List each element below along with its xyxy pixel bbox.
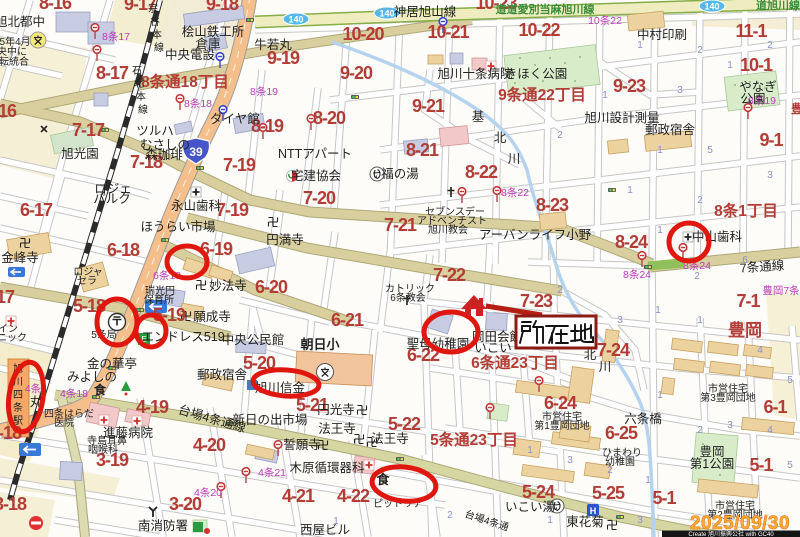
svg-text:旭北都中: 旭北都中 [0,14,45,29]
svg-text:円満寺: 円満寺 [266,233,304,247]
svg-text:誓願寺: 誓願寺 [283,438,321,452]
svg-text:1: 1 [527,445,533,456]
svg-text:10-22: 10-22 [518,20,560,40]
svg-text:線: 線 [138,103,148,116]
svg-text:六条橋: 六条橋 [624,412,662,426]
svg-text:永山歯科: 永山歯科 [171,199,222,213]
svg-text:南消防署: 南消防署 [138,518,188,533]
svg-text:6: 6 [742,255,748,266]
svg-text:第3豊岡団地: 第3豊岡団地 [700,391,756,404]
svg-text:5-17: 5-17 [0,287,15,307]
svg-text:基: 基 [472,110,485,124]
svg-text:1: 1 [697,315,703,326]
svg-text:8条通18丁目: 8条通18丁目 [141,72,229,91]
svg-text:3: 3 [567,455,573,466]
svg-text:道旭川線: 道旭川線 [756,0,800,12]
svg-text:妙法寺: 妙法寺 [209,279,247,293]
svg-text:宗: 宗 [148,2,158,15]
svg-text:140: 140 [704,2,719,12]
svg-text:4条: 4条 [25,382,42,395]
svg-text:エンドレス519: エンドレス519 [141,330,224,344]
svg-text:9-20: 9-20 [340,63,373,83]
svg-text:4: 4 [757,345,763,356]
svg-text:5: 5 [787,460,793,471]
svg-text:本: 本 [152,28,162,41]
svg-text:願成寺: 願成寺 [193,310,231,324]
svg-text:NTTアパート: NTTアパート [278,147,352,161]
svg-text:1: 1 [333,516,339,527]
svg-text:3-18: 3-18 [0,494,27,514]
svg-text:6-24: 6-24 [544,393,577,413]
svg-text:牛若丸: 牛若丸 [254,37,292,52]
svg-text:4-21: 4-21 [282,486,315,506]
svg-text:保育所: 保育所 [144,293,174,306]
svg-text:食: 食 [93,382,107,397]
svg-text:倉庫: 倉庫 [195,36,220,51]
svg-text:パルク: パルク [93,192,131,206]
svg-text:豊岡7条: 豊岡7条 [762,284,800,297]
svg-text:4条21: 4条21 [258,466,286,479]
svg-text:ニック: ニック [0,332,27,344]
svg-text:1: 1 [602,90,608,101]
svg-text:石: 石 [132,66,142,77]
svg-text:6-18: 6-18 [107,240,140,260]
svg-text:5-1: 5-1 [652,488,676,508]
svg-text:中村印刷: 中村印刷 [637,27,687,42]
svg-text:6-1: 6-1 [763,397,787,417]
svg-text:4条18: 4条18 [60,387,88,400]
svg-text:豊岡: 豊岡 [728,320,762,340]
svg-text:2: 2 [697,425,703,436]
svg-text:8条24: 8条24 [623,268,651,281]
svg-text:1: 1 [657,145,663,156]
svg-text:北: 北 [134,78,144,90]
svg-text:8条22: 8条22 [501,186,529,199]
svg-text:3: 3 [637,515,643,526]
svg-text:8条19: 8条19 [250,85,278,98]
svg-text:円光寺: 円光寺 [317,403,355,417]
svg-text:9-23: 9-23 [613,76,646,96]
svg-text:中山歯科: 中山歯科 [692,229,743,244]
svg-text:8条17: 8条17 [102,30,130,43]
svg-text:法王寺: 法王寺 [318,422,356,436]
svg-text:8-21: 8-21 [406,140,439,160]
svg-text:ツルハ: ツルハ [136,124,174,138]
svg-text:2: 2 [447,510,453,521]
svg-text:金峰寺: 金峰寺 [1,250,39,265]
svg-text:本: 本 [136,90,146,103]
svg-text:1: 1 [637,40,643,51]
svg-text:3: 3 [727,420,733,431]
svg-text:1: 1 [547,515,553,526]
svg-text:木原循環器科: 木原循環器科 [289,461,365,475]
svg-text:1: 1 [727,60,733,71]
svg-text:2: 2 [557,130,563,141]
svg-text:7-20: 7-20 [303,188,336,208]
svg-text:第1公園: 第1公園 [690,457,734,471]
svg-text:8条1丁目: 8条1丁目 [714,201,778,220]
svg-text:法王寺: 法王寺 [371,432,409,446]
svg-text:6-25: 6-25 [605,423,638,443]
svg-text:1: 1 [627,185,633,196]
svg-text:6-17: 6-17 [20,200,53,220]
svg-text:8-23: 8-23 [536,195,569,215]
svg-text:7-16: 7-16 [0,101,17,121]
svg-text:川: 川 [508,152,521,166]
svg-text:3: 3 [617,315,623,326]
svg-text:9条通22丁目: 9条通22丁目 [498,85,586,104]
svg-text:4-22: 4-22 [337,486,370,506]
svg-text:9-21: 9-21 [412,96,445,116]
svg-text:5: 5 [787,375,793,386]
svg-text:6-20: 6-20 [255,277,288,297]
svg-text:5: 5 [707,145,713,156]
svg-text:1: 1 [655,305,661,316]
svg-text:8-24: 8-24 [615,232,648,252]
svg-text:川: 川 [599,360,612,374]
svg-text:咽喉科: 咽喉科 [88,443,118,456]
svg-text:5-22: 5-22 [388,414,421,434]
svg-text:条: 条 [13,401,23,414]
svg-text:1: 1 [657,390,663,401]
svg-text:7-1: 7-1 [736,291,760,311]
svg-text:9-1: 9-1 [759,130,783,150]
svg-text:線: 線 [154,41,164,54]
svg-text:9-18: 9-18 [206,0,239,14]
svg-text:4-20: 4-20 [193,435,226,455]
svg-text:いこい: いこい [474,341,512,355]
svg-text:宅建協会: 宅建協会 [291,168,342,183]
svg-text:郵政宿舎: 郵政宿舎 [197,367,248,382]
svg-text:5条通23丁目: 5条通23丁目 [430,430,518,449]
svg-text:1: 1 [657,225,663,236]
svg-text:2: 2 [557,285,563,296]
svg-text:旭光園: 旭光園 [61,147,99,161]
svg-text:10-1: 10-1 [740,55,773,75]
svg-text:8-16: 8-16 [39,0,72,13]
svg-text:郵政宿舎: 郵政宿舎 [645,122,696,137]
svg-text:8-20: 8-20 [313,108,346,128]
svg-text:4-19: 4-19 [136,397,169,417]
svg-text:旭川教会: 旭川教会 [428,223,468,236]
svg-text:旭川十条病院: 旭川十条病院 [437,66,513,81]
svg-text:Create 旭川振興公社 with GC40: Create 旭川振興公社 with GC40 [688,530,774,537]
svg-text:4条20: 4条20 [194,486,222,499]
svg-text:西屋ビル: 西屋ビル [300,523,350,537]
svg-text:福の湯: 福の湯 [381,166,419,181]
svg-text:8-22: 8-22 [465,162,498,182]
svg-text:2: 2 [697,195,703,206]
svg-text:11-1: 11-1 [735,21,767,41]
svg-text:ほうらい市場: ほうらい市場 [140,219,215,234]
svg-text:10-21: 10-21 [427,22,469,42]
svg-text:7-21: 7-21 [384,215,417,235]
svg-text:8条18: 8条18 [184,97,212,110]
svg-text:7-17: 7-17 [72,120,105,140]
svg-text:2: 2 [694,271,700,282]
svg-text:公園: 公園 [740,92,765,106]
svg-text:7-19: 7-19 [223,155,256,175]
svg-text:いこい湯: いこい湯 [505,500,555,514]
svg-text:8-17: 8-17 [96,63,129,83]
svg-text:7-23: 7-23 [520,291,553,311]
svg-text:中央公民館: 中央公民館 [222,332,285,347]
svg-text:5-1: 5-1 [749,455,773,475]
svg-text:北: 北 [494,131,507,145]
svg-text:道道愛別当麻旭川線: 道道愛別当麻旭川線 [496,2,595,16]
svg-text:アーバンライフ小野: アーバンライフ小野 [479,228,592,242]
svg-text:10-20: 10-20 [342,24,384,44]
svg-text:140: 140 [379,9,394,19]
svg-text:3: 3 [677,85,683,96]
svg-text:6条通23丁目: 6条通23丁目 [471,353,559,372]
svg-text:朝日小: 朝日小 [300,337,339,352]
svg-text:5-24: 5-24 [522,482,555,502]
svg-text:6-21: 6-21 [331,310,364,330]
svg-text:谷: 谷 [150,16,160,28]
svg-text:第1豊岡団地: 第1豊岡団地 [534,419,590,432]
svg-text:6条教会: 6条教会 [390,291,426,304]
svg-text:3: 3 [767,170,773,181]
svg-text:ダイヤ館: ダイヤ館 [210,111,260,126]
svg-text:4: 4 [767,425,773,436]
svg-text:医院: 医院 [54,416,74,429]
svg-text:140: 140 [288,15,303,25]
svg-text:39: 39 [189,145,203,159]
svg-text:転統合: 転統合 [0,55,29,68]
svg-text:2: 2 [607,465,613,476]
svg-text:1: 1 [645,475,651,486]
svg-text:豊: 豊 [791,101,800,116]
svg-text:神居旭山線: 神居旭山線 [394,4,457,19]
svg-text:四: 四 [13,390,23,401]
svg-text:北: 北 [584,348,597,362]
svg-text:東花菊: 東花菊 [566,514,604,529]
svg-text:みよしの: みよしの [67,370,117,384]
svg-text:金の華亭: 金の華亭 [87,356,137,371]
svg-text:5-25: 5-25 [592,483,625,503]
svg-text:7-24: 7-24 [597,340,630,360]
svg-text:7-22: 7-22 [433,265,466,285]
svg-text:きほく公園: きほく公園 [505,67,568,81]
svg-text:2: 2 [767,40,773,51]
svg-text:2: 2 [697,45,703,56]
svg-text:セラ: セラ [77,275,97,287]
svg-text:森珈琲: 森珈琲 [145,147,183,162]
